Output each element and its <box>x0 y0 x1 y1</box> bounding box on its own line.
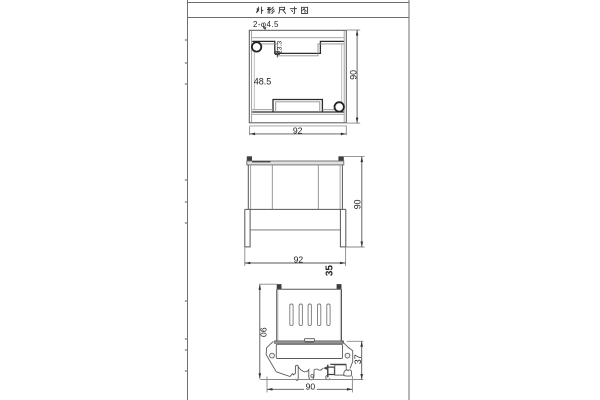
svg-text:37: 37 <box>353 354 363 364</box>
svg-text:35: 35 <box>325 265 336 277</box>
svg-text:90: 90 <box>259 327 269 337</box>
svg-text:90: 90 <box>353 199 363 209</box>
svg-text:92: 92 <box>294 254 304 264</box>
svg-text:13.3: 13.3 <box>276 41 283 54</box>
svg-text:48.5: 48.5 <box>254 76 272 86</box>
svg-text:90: 90 <box>348 70 358 80</box>
svg-text:92: 92 <box>293 125 303 135</box>
svg-text:90: 90 <box>306 382 316 392</box>
